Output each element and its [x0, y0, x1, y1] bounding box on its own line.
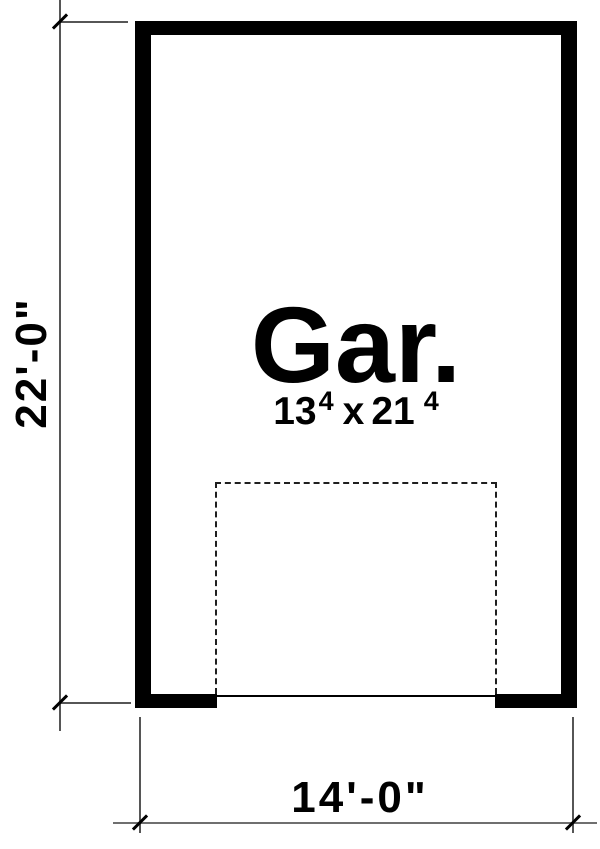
- extension-line-bottom-right: [572, 717, 574, 833]
- room-size-label: 134x214: [135, 392, 577, 431]
- room-size-width: 13: [273, 390, 316, 433]
- room-label: Gar.: [135, 291, 577, 399]
- dimension-line-vertical: [59, 0, 61, 731]
- floor-plan-canvas: Gar. 134x214 22'-0" 14'-0": [0, 0, 600, 849]
- extension-line-bottom-left-wall: [60, 702, 131, 704]
- wall-top: [135, 21, 577, 35]
- garage-door-dashed-outline: [215, 482, 497, 694]
- dimension-label-left: 22'-0": [10, 297, 54, 428]
- extension-line-top: [60, 21, 128, 23]
- garage-door-header-line: [217, 695, 495, 697]
- wall-bottom-right-segment: [497, 694, 577, 708]
- room-size-separator: x: [343, 390, 365, 433]
- dimension-label-bottom: 14'-0": [260, 776, 460, 820]
- room-size-width-superscript: 4: [319, 388, 334, 415]
- extension-line-bottom-left: [139, 717, 141, 833]
- wall-bottom-left-segment: [135, 694, 215, 708]
- room-size-length-superscript: 4: [424, 388, 439, 415]
- room-size-length: 21: [371, 390, 414, 433]
- dimension-line-horizontal: [113, 822, 597, 824]
